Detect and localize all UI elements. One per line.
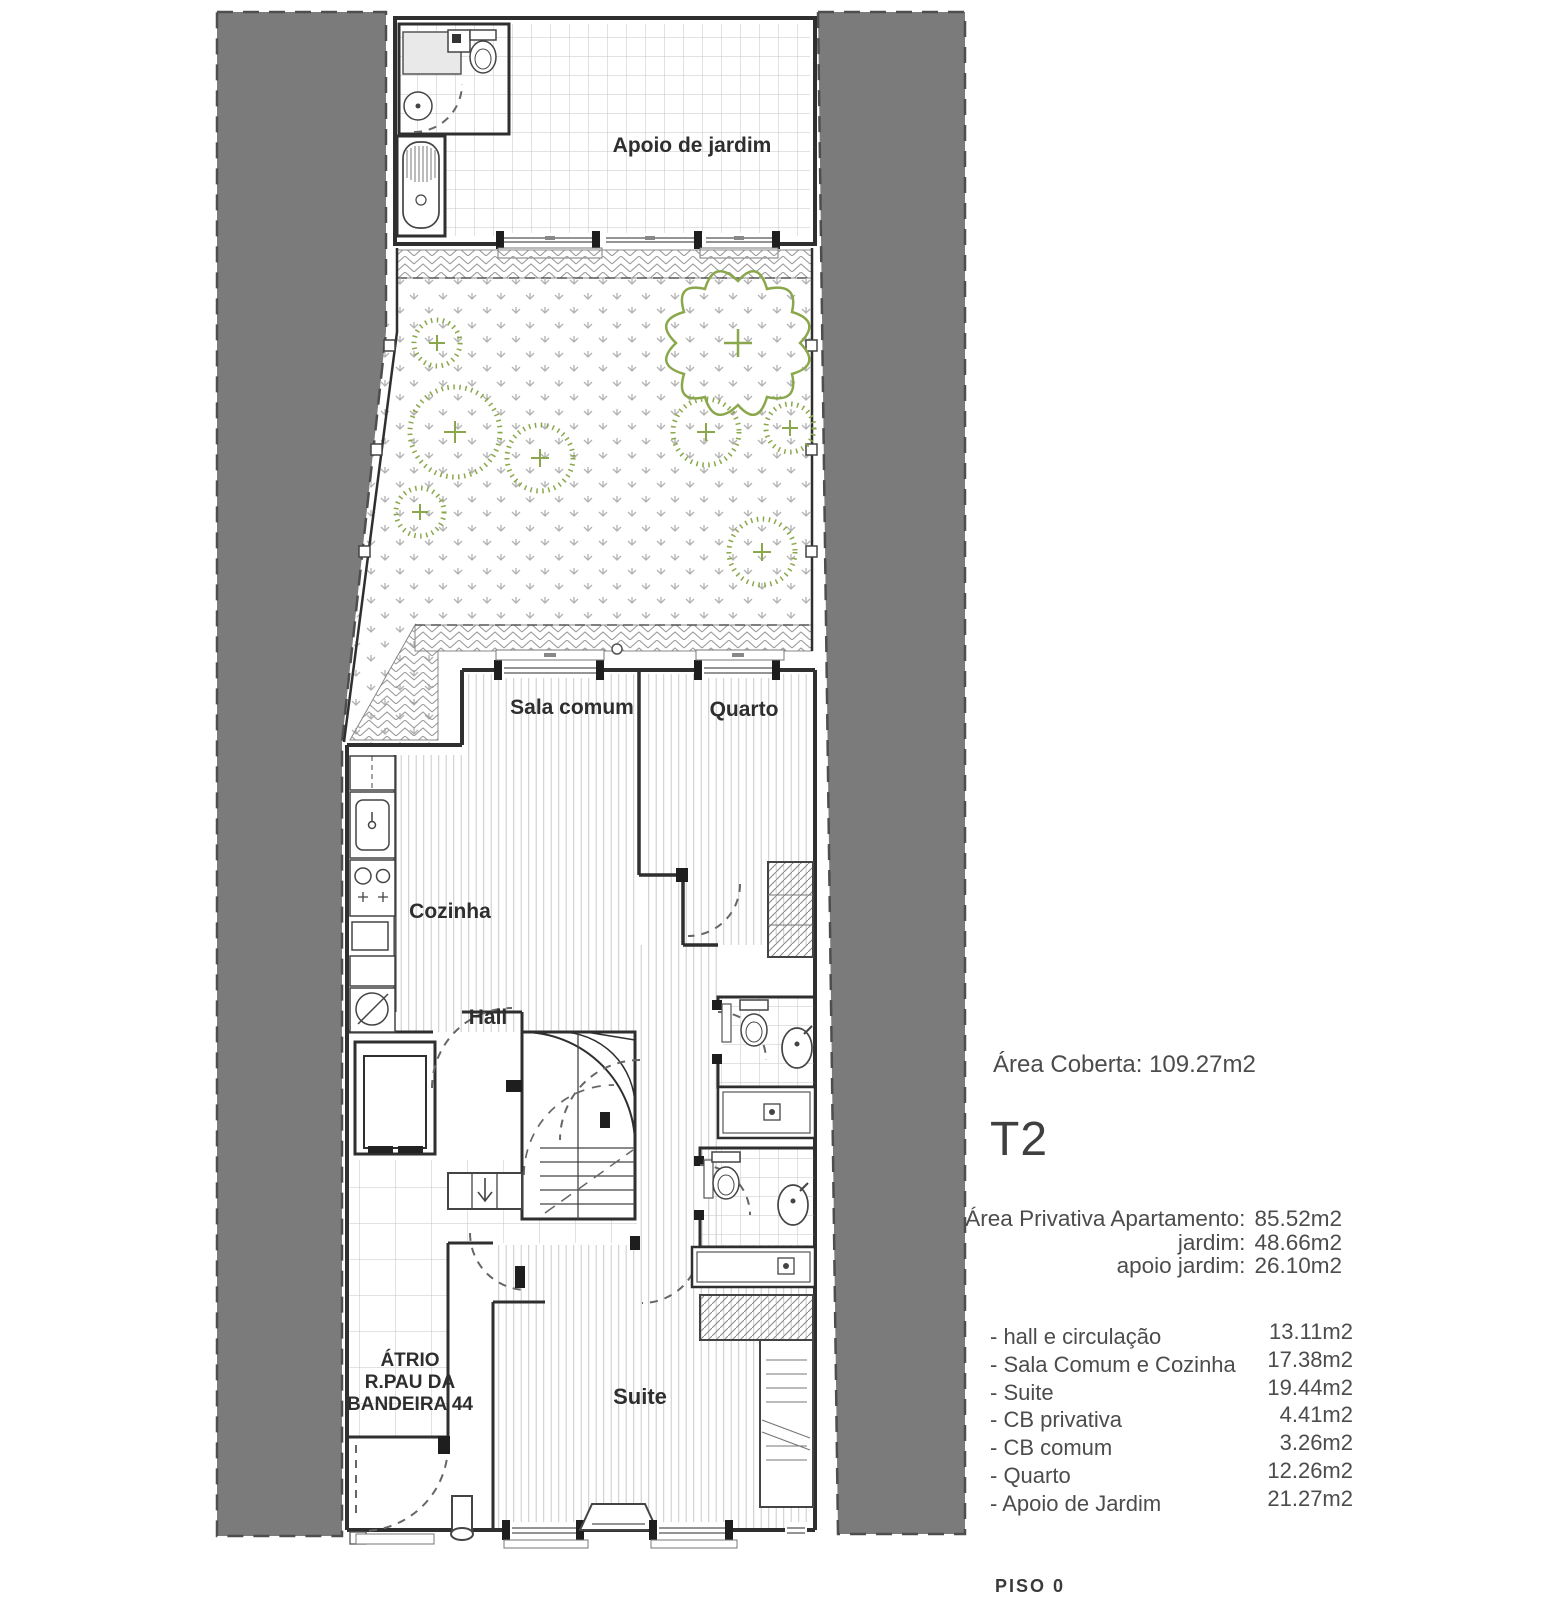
toilet-icon <box>470 30 496 73</box>
label-quarto: Quarto <box>710 698 779 721</box>
floor-plan-page: Apoio de jardim Sala comum Quarto Cozinh… <box>0 0 1556 1609</box>
sala-window <box>494 650 604 680</box>
quarto-window <box>694 650 784 680</box>
room-area-label: - CB comum <box>990 1435 1112 1461</box>
bathtub-icon <box>397 136 445 236</box>
room-area-value: 4.41m2 <box>1280 1402 1353 1428</box>
room-area-label: - Suite <box>990 1380 1054 1406</box>
private-area-value: 48.66m2 <box>1254 1231 1342 1255</box>
room-area-value: 13.11m2 <box>1269 1319 1353 1345</box>
bathtub-icon <box>718 1087 815 1138</box>
label-apoio-de-jardim: Apoio de jardim <box>613 134 772 157</box>
unit-type-title: T2 <box>990 1112 1048 1167</box>
label-cozinha: Cozinha <box>409 900 491 923</box>
kitchen-fixtures <box>350 755 395 1032</box>
private-area-value: 26.10m2 <box>1254 1254 1342 1278</box>
staircase <box>522 1032 635 1219</box>
pilaster <box>451 1496 473 1540</box>
bay-door <box>580 1504 657 1530</box>
drain-icon <box>612 644 622 654</box>
site-neighbour-right <box>818 12 965 1534</box>
room-area-label: - Quarto <box>990 1463 1071 1489</box>
private-area-label: apoio jardim: <box>1117 1254 1246 1278</box>
room-area-value: 3.26m2 <box>1280 1430 1353 1456</box>
toilet-icon <box>712 1152 740 1199</box>
label-atrio-line3: BANDEIRA 44 <box>347 1394 473 1415</box>
private-area-row: Área Privativa Apartamento: 85.52m2 <box>960 1207 1342 1231</box>
room-area-value: 12.26m2 <box>1267 1458 1353 1484</box>
room-area-value: 17.38m2 <box>1267 1347 1353 1373</box>
kitchen-sink-icon <box>350 792 395 858</box>
elevator <box>355 1042 435 1154</box>
total-covered-area: Área Coberta: 109.27m2 <box>993 1051 1256 1079</box>
bathroom-cb-comum <box>712 997 815 1087</box>
cooktop-icon <box>350 860 395 916</box>
room-area-value: 19.44m2 <box>1267 1375 1353 1401</box>
entrance <box>350 1436 473 1544</box>
label-sala-comum: Sala comum <box>510 696 634 719</box>
private-area-row: apoio jardim: 26.10m2 <box>960 1254 1342 1278</box>
quarto-closet <box>768 862 813 957</box>
private-areas-block: Área Privativa Apartamento: 85.52m2 jard… <box>960 1207 1342 1278</box>
room-area-row: - Apoio de Jardim 21.27m2 <box>990 1491 1353 1519</box>
wc-basin-icon <box>350 988 395 1032</box>
sink-icon <box>404 92 432 120</box>
paving-strip-top <box>397 250 812 278</box>
label-suite: Suite <box>613 1384 667 1409</box>
private-area-row: jardim: 48.66m2 <box>960 1231 1342 1255</box>
room-area-value: 21.27m2 <box>1267 1486 1353 1512</box>
room-area-label: - Sala Comum e Cozinha <box>990 1352 1236 1378</box>
floor-title: PISO 0 <box>995 1576 1065 1597</box>
room-area-label: - Apoio de Jardim <box>990 1491 1161 1517</box>
washing-machine-icon <box>448 30 470 52</box>
room-areas-list: - hall e circulação 13.11m2 - Sala Comum… <box>990 1324 1353 1519</box>
label-atrio-line1: ÁTRIO <box>380 1349 439 1371</box>
room-area-label: - CB privativa <box>990 1407 1122 1433</box>
entry-steps <box>448 1173 522 1209</box>
bathroom-cb-privativa <box>694 1148 815 1247</box>
toilet-icon <box>740 1000 768 1046</box>
label-atrio-line2: R.PAU DA <box>365 1372 456 1393</box>
private-area-label: jardim: <box>1178 1231 1246 1255</box>
room-area-label: - hall e circulação <box>990 1324 1161 1350</box>
bathtub-icon <box>692 1247 815 1287</box>
label-hall: Hall <box>469 1006 508 1029</box>
private-area-value: 85.52m2 <box>1254 1207 1342 1231</box>
private-area-label: Área Privativa Apartamento: <box>965 1207 1245 1231</box>
